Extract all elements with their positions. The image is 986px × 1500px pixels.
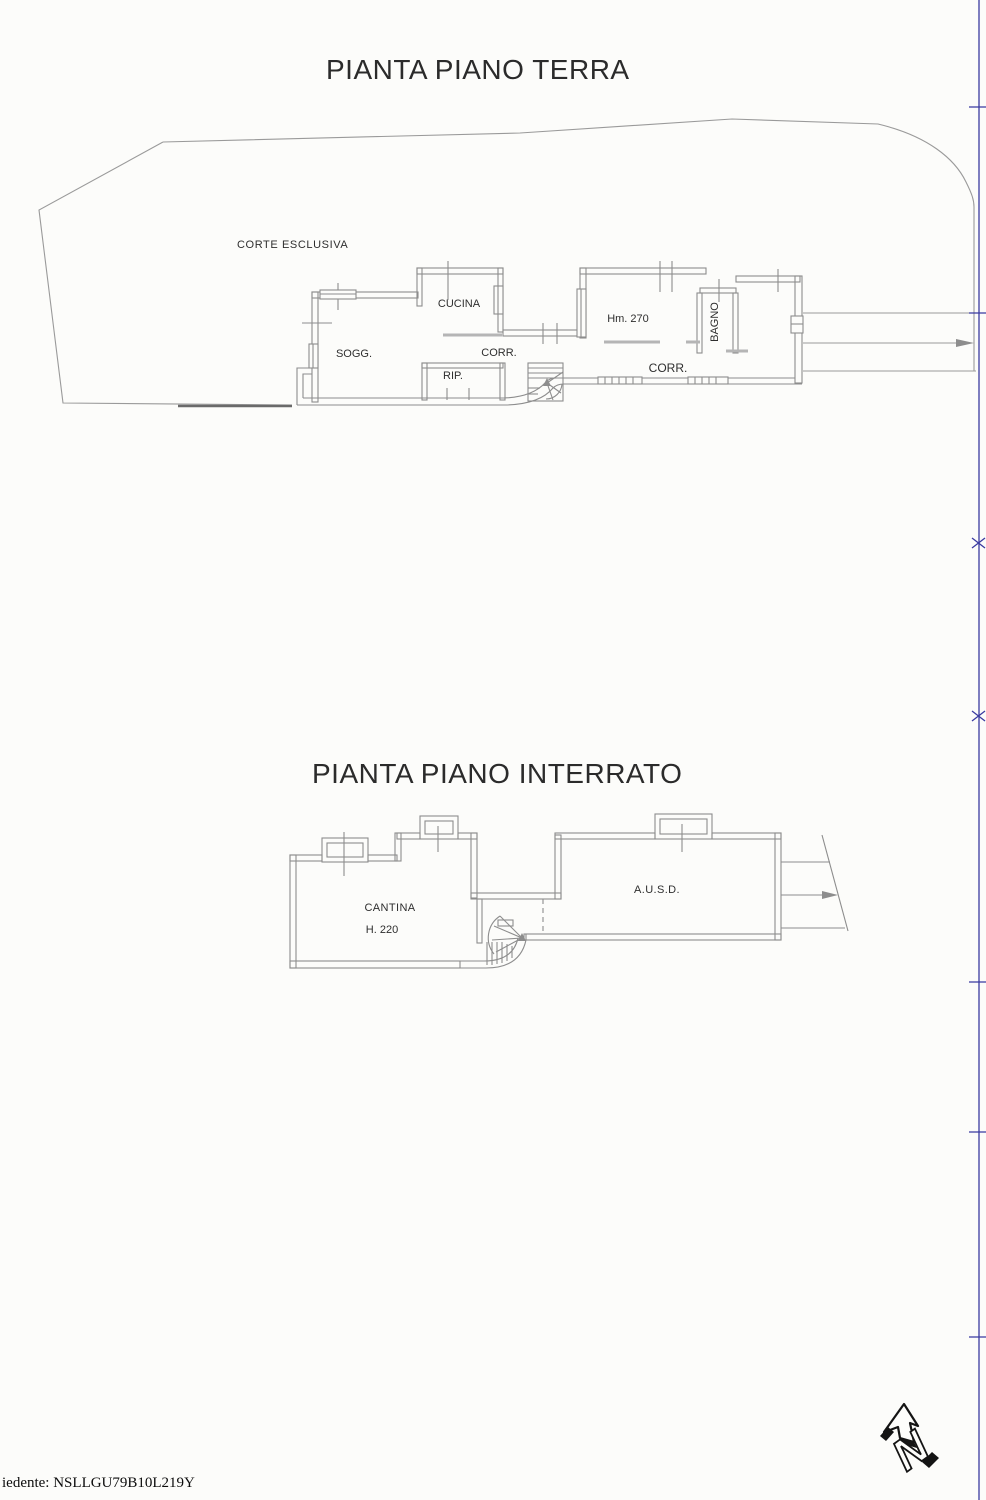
label-ripostiglio: RIP. bbox=[443, 370, 463, 382]
label-corridoio-1: CORR. bbox=[481, 347, 516, 359]
label-altezza-hm270: Hm. 270 bbox=[607, 313, 649, 325]
basement-labels: CANTINA H. 220 A.U.S.D. bbox=[364, 884, 680, 936]
label-ausd: A.U.S.D. bbox=[634, 884, 680, 896]
label-bagno: BAGNO bbox=[709, 302, 721, 342]
driveway-arrow-icon bbox=[956, 339, 974, 347]
label-corridoio-2: CORR. bbox=[649, 361, 688, 375]
driveway-lines bbox=[803, 313, 976, 371]
label-soggiorno: SOGG. bbox=[336, 348, 372, 360]
label-cucina: CUCINA bbox=[438, 298, 481, 310]
label-cantina: CANTINA bbox=[364, 902, 415, 914]
spiral-stair-basement bbox=[487, 916, 526, 965]
ground-floor-plan bbox=[39, 119, 976, 406]
plan-sheet: PIANTA PIANO TERRA PIANTA PIANO INTERRAT… bbox=[0, 0, 986, 1500]
ground-floor-building bbox=[297, 261, 803, 405]
floor-plan-drawing: CORTE ESCLUSIVA SOGG. CUCINA CORR. RIP. … bbox=[0, 0, 986, 1500]
sheet-edge-line bbox=[969, 0, 986, 1500]
label-corte-esclusiva: CORTE ESCLUSIVA bbox=[237, 239, 348, 251]
north-arrow-icon: N bbox=[880, 1404, 939, 1480]
basement-ramp bbox=[781, 835, 848, 931]
courtyard-boundary-left bbox=[39, 142, 292, 405]
ramp-arrow-icon bbox=[822, 891, 838, 899]
label-altezza-h220: H. 220 bbox=[366, 924, 398, 936]
basement-plan bbox=[290, 814, 848, 968]
window-ticks bbox=[302, 261, 778, 344]
